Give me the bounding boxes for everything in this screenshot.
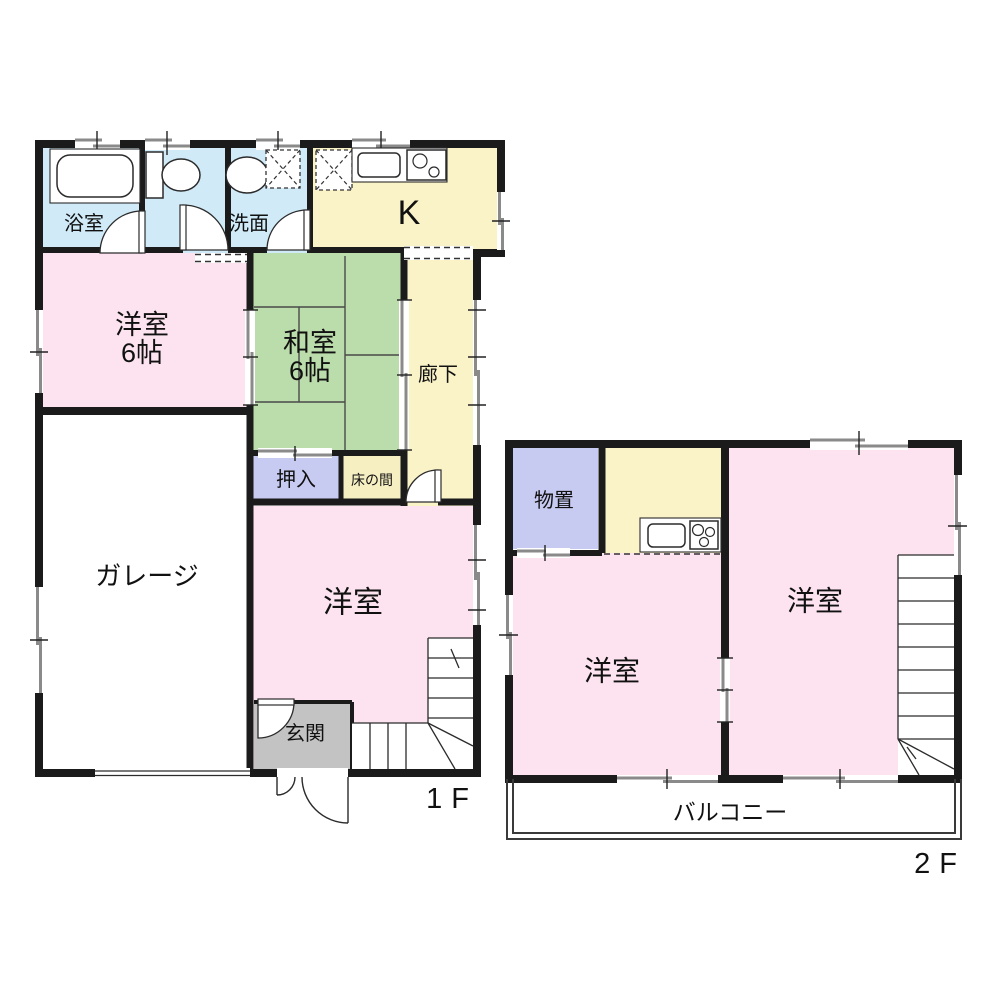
label-western-2f-left: 洋室: [584, 656, 640, 687]
floor-2f: 物置 洋室 洋室 バルコニー 2F: [499, 431, 967, 880]
kitchen-sink-icon-2f: [648, 524, 685, 547]
floorplan-canvas: 浴室 洗面 K 洋室 6帖 和室 6帖 廊下 押入 床の間 ガレージ 洋室 玄関…: [0, 0, 1000, 1000]
kitchen-sink-icon: [358, 153, 400, 177]
label-floor2: 2F: [914, 848, 966, 880]
open-passage-western6: [195, 253, 247, 263]
entrance-door: [277, 768, 348, 823]
label-japanese6-size: 6帖: [289, 356, 331, 386]
fridge-space-dashed: [316, 150, 352, 190]
label-bathroom: 浴室: [64, 212, 104, 235]
label-corridor: 廊下: [418, 363, 458, 386]
label-western-1f: 洋室: [323, 587, 383, 620]
label-japanese6: 和室: [283, 328, 337, 358]
label-entrance: 玄関: [285, 722, 325, 745]
label-kitchen: K: [398, 194, 421, 232]
label-balcony: バルコニー: [673, 799, 788, 825]
label-garage: ガレージ: [95, 561, 198, 591]
label-washroom: 洗面: [229, 212, 269, 235]
stairs-2f: [898, 555, 954, 775]
label-oshiire: 押入: [276, 468, 316, 491]
bathtub-icon: [50, 149, 140, 203]
label-tokonoma: 床の間: [351, 472, 393, 488]
floorplan-svg: 浴室 洗面 K 洋室 6帖 和室 6帖 廊下 押入 床の間 ガレージ 洋室 玄関…: [0, 0, 1000, 1000]
open-passage-kitchen-corridor: [404, 246, 473, 260]
label-western6: 洋室: [115, 310, 169, 340]
washer-space-dashed: [266, 150, 300, 188]
stove-icon-1f: [407, 150, 446, 180]
room-1f-garage: [39, 411, 250, 773]
washbasin-icon: [226, 157, 268, 193]
kitchen-counter-1f: [352, 148, 447, 182]
label-storage: 物置: [534, 489, 574, 512]
garage-shutter: [95, 768, 250, 778]
label-western-2f-right: 洋室: [787, 586, 843, 617]
label-floor1: 1F: [426, 783, 478, 815]
label-western6-size: 6帖: [121, 338, 163, 368]
floor-1f: 浴室 洗面 K 洋室 6帖 和室 6帖 廊下 押入 床の間 ガレージ 洋室 玄関…: [30, 131, 510, 823]
